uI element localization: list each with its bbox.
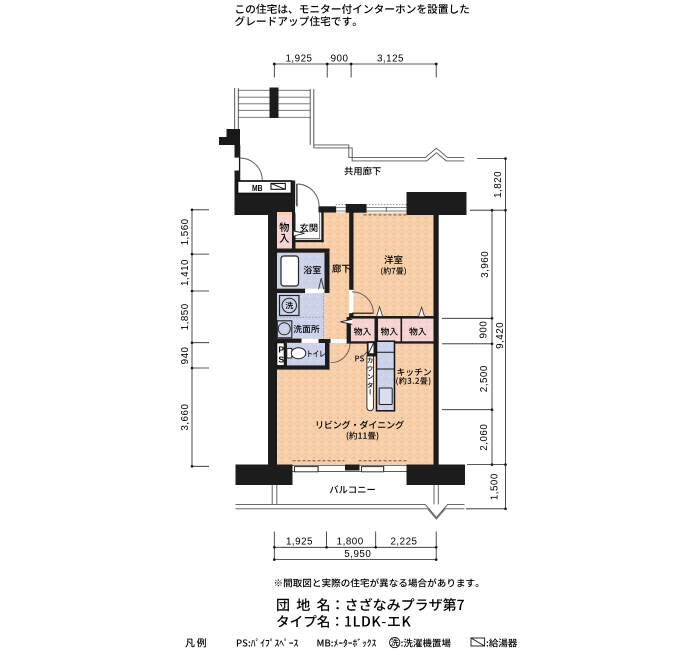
svg-text:900: 900: [331, 53, 349, 64]
svg-text:S: S: [278, 355, 284, 365]
svg-text:1,560: 1,560: [180, 218, 191, 245]
svg-text:1,850: 1,850: [180, 303, 191, 330]
svg-text:1,820: 1,820: [493, 171, 504, 198]
svg-text:MB: MB: [252, 183, 263, 193]
svg-text:2,225: 2,225: [390, 536, 417, 547]
svg-text:900: 900: [479, 321, 490, 339]
svg-text:P: P: [278, 344, 284, 354]
svg-text:940: 940: [180, 346, 191, 364]
svg-text:3,660: 3,660: [180, 404, 191, 431]
svg-text:3,960: 3,960: [480, 251, 491, 278]
svg-text:2,060: 2,060: [479, 424, 490, 451]
svg-text:2,500: 2,500: [479, 365, 490, 392]
svg-text:3,125: 3,125: [377, 53, 404, 64]
svg-text:1,410: 1,410: [180, 259, 191, 286]
svg-text:1,800: 1,800: [337, 536, 364, 547]
svg-text:5,950: 5,950: [344, 549, 371, 560]
svg-text:1,500: 1,500: [490, 473, 501, 500]
svg-text:1,925: 1,925: [286, 536, 313, 547]
svg-text:1,925: 1,925: [285, 53, 312, 64]
svg-text:9,420: 9,420: [495, 322, 506, 349]
